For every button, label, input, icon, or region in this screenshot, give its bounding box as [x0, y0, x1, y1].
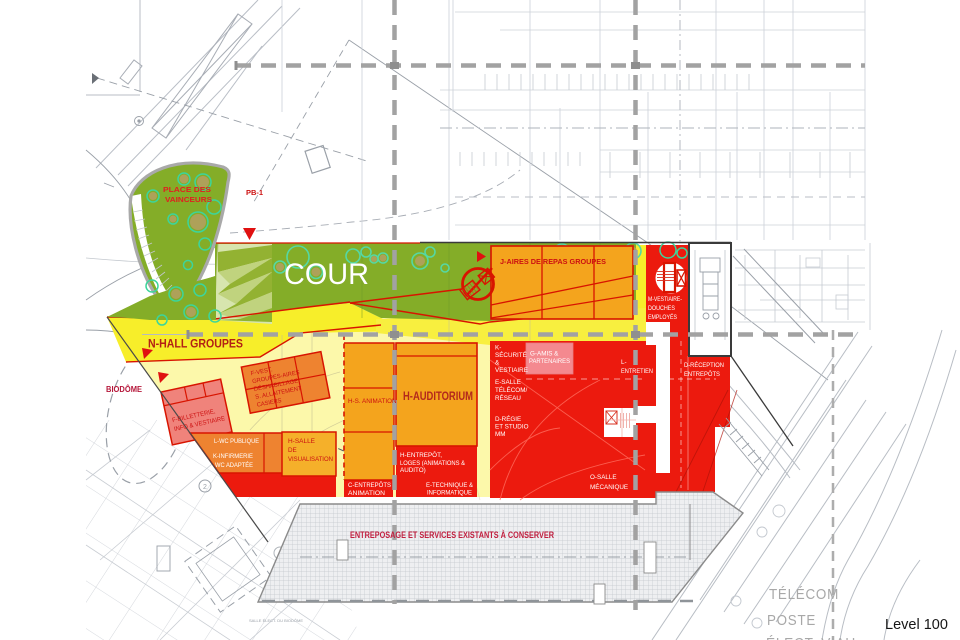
svg-text:H-ENTREPÔT,: H-ENTREPÔT,	[400, 450, 442, 459]
svg-text:J-AIRES DE REPAS GROUPES: J-AIRES DE REPAS GROUPES	[500, 257, 606, 266]
svg-text:MÉCANIQUE: MÉCANIQUE	[590, 482, 628, 491]
svg-text:AUDITO): AUDITO)	[400, 467, 426, 474]
svg-text:EMPLOYÉS: EMPLOYÉS	[648, 312, 677, 321]
svg-text:M-VESTIAIRE-: M-VESTIAIRE-	[648, 296, 682, 303]
svg-text:RÉSEAU: RÉSEAU	[495, 393, 521, 402]
svg-text:ENTREPOSAGE ET SERVICES EXISTA: ENTREPOSAGE ET SERVICES EXISTANTS À CONS…	[350, 530, 554, 541]
svg-text:K-: K-	[495, 345, 501, 352]
svg-text:WC ADAPTÉE: WC ADAPTÉE	[215, 460, 253, 469]
svg-text:BIODÔME: BIODÔME	[106, 383, 142, 394]
svg-text:2: 2	[203, 484, 207, 491]
svg-text:PLACE DES: PLACE DES	[163, 185, 211, 194]
svg-text:MM: MM	[495, 431, 506, 438]
svg-text:H-AUDITORIUM: H-AUDITORIUM	[403, 391, 473, 403]
svg-text:LOGES (ANIMATIONS &: LOGES (ANIMATIONS &	[400, 460, 466, 467]
svg-text:E-SALLE: E-SALLE	[495, 379, 521, 386]
svg-text:L-: L-	[621, 359, 627, 366]
svg-text:VISUALISATION: VISUALISATION	[288, 456, 333, 463]
svg-text:TÉLÉCOM: TÉLÉCOM	[769, 586, 839, 603]
svg-text:PB-1: PB-1	[246, 188, 263, 197]
svg-text:PARTENAIRES: PARTENAIRES	[529, 358, 570, 365]
svg-text:O-SALLE: O-SALLE	[590, 474, 617, 481]
svg-text:ENTRETIEN: ENTRETIEN	[621, 368, 653, 375]
svg-text:ENTREPÔTS: ENTREPÔTS	[684, 369, 720, 378]
svg-text:N-HALL GROUPES: N-HALL GROUPES	[148, 337, 243, 351]
svg-text:INFORMATIQUE: INFORMATIQUE	[427, 490, 472, 497]
svg-text:D-RÉGIE: D-RÉGIE	[495, 414, 521, 423]
svg-text:D-RÉCEPTION: D-RÉCEPTION	[684, 360, 724, 369]
svg-text:K-INFIRMERIE: K-INFIRMERIE	[213, 453, 253, 460]
svg-text:Level 100: Level 100	[885, 617, 948, 633]
svg-text:COUR: COUR	[284, 258, 369, 291]
svg-text:H-S. ANIMATION: H-S. ANIMATION	[348, 398, 397, 405]
svg-text:C-ENTREPÔTS: C-ENTREPÔTS	[348, 480, 391, 489]
svg-text:POSTE: POSTE	[767, 613, 816, 629]
svg-text:DOUCHES: DOUCHES	[648, 305, 675, 312]
svg-text:ÉLECT. VIAU: ÉLECT. VIAU	[766, 635, 856, 640]
svg-text:ANIMATION: ANIMATION	[348, 490, 385, 497]
svg-text:E-TECHNIQUE &: E-TECHNIQUE &	[426, 482, 474, 489]
svg-text:DE: DE	[288, 447, 297, 454]
svg-text:ET STUDIO: ET STUDIO	[495, 424, 529, 431]
svg-text:G-AMIS &: G-AMIS &	[530, 351, 559, 358]
svg-text:L-WC PUBLIQUE: L-WC PUBLIQUE	[214, 438, 259, 445]
svg-text:H-SALLE: H-SALLE	[288, 438, 315, 445]
svg-text:TÉLÉCOM/: TÉLÉCOM/	[495, 385, 527, 394]
svg-text:SÉCURITÉ: SÉCURITÉ	[495, 350, 527, 359]
svg-text:SALLE ÉLECT. DU BIODÔME: SALLE ÉLECT. DU BIODÔME	[249, 618, 303, 623]
svg-text:VESTIAIRE: VESTIAIRE	[495, 367, 528, 374]
svg-text:VAINCEURS: VAINCEURS	[165, 195, 212, 204]
